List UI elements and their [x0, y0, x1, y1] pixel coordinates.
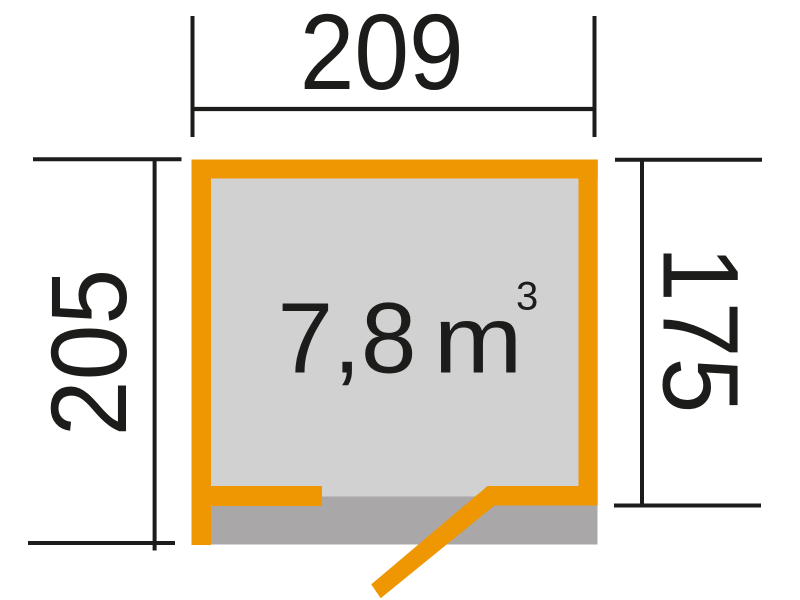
- svg-text:205: 205: [30, 269, 150, 437]
- svg-text:209: 209: [300, 0, 464, 112]
- svg-text:175: 175: [640, 246, 760, 414]
- svg-text:3: 3: [516, 275, 538, 319]
- svg-text:m: m: [434, 286, 523, 393]
- svg-text:7,8: 7,8: [278, 282, 417, 394]
